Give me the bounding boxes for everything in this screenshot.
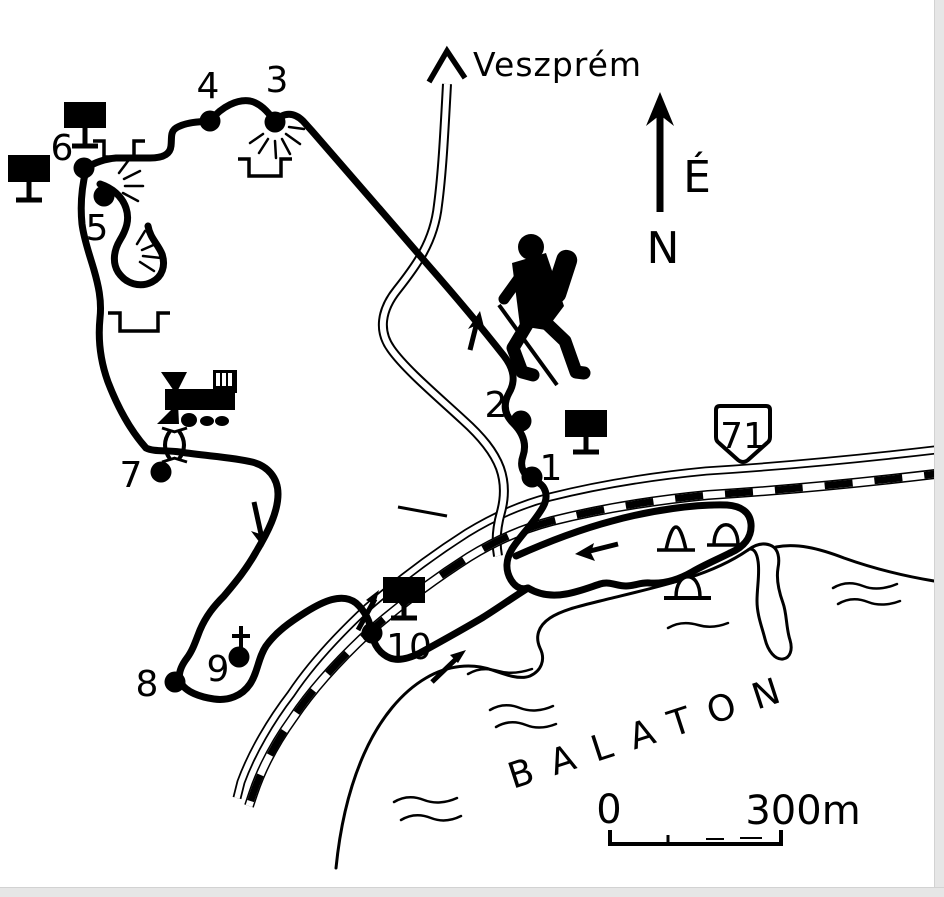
arch-monument-icon-2 [707,525,745,545]
waypoint-dot-2 [511,411,532,432]
waypoint-label-8: 8 [136,664,159,705]
waypoint-dots [74,111,543,693]
route-arrow-left [575,543,618,561]
lake-label: BALATON [503,665,803,797]
destination-label: Veszprém [473,45,642,84]
compass-label-n: N [647,223,680,274]
waypoint-label-9: 9 [207,649,230,690]
waypoint-dot-6 [74,158,95,179]
screenshot-edge-bottom [0,887,944,897]
road-veszprem [383,84,504,556]
ruin-icon-3 [108,313,170,331]
peninsula [748,544,791,659]
waypoint-label-7: 7 [120,455,143,496]
steam-train-icon [157,370,237,427]
ruin-icon-2 [238,159,292,176]
hiker-icon [499,234,584,385]
waypoint-label-10: 10 [386,627,432,668]
waypoint-dot-3 [265,112,286,133]
waypoint-label-6: 6 [51,128,74,169]
waypoint-dot-4 [200,111,221,132]
waypoint-label-1: 1 [540,448,563,489]
road-shield-number: 71 [720,416,766,457]
scale-zero-label: 0 [596,787,621,833]
water-waves [394,583,900,820]
compass-label-e: É [683,150,711,203]
side-road-stub [398,507,447,516]
scale-bar: 0 300m [596,787,860,844]
waypoint-label-5: 5 [86,208,109,249]
north-arrow-icon [646,92,674,212]
waypoint-label-2: 2 [485,385,508,426]
waypoint-dot-5 [94,186,115,207]
screenshot-edge-right [934,0,944,897]
destination-arrowhead [429,51,465,82]
waypoint-label-4: 4 [197,66,220,107]
road-shield-71: 71 [716,406,770,462]
info-board-icon-2 [8,155,50,200]
waypoint-dot-8 [165,672,186,693]
gate-icon [162,428,187,462]
arch-monument-icon-1 [657,527,695,550]
waypoint-dot-9 [229,647,250,668]
map-canvas: É N 71 [0,0,944,897]
info-board-icon-3 [565,410,607,452]
waypoint-label-3: 3 [266,60,289,101]
scale-end-label: 300m [745,788,860,834]
trail-map: É N 71 [0,0,944,897]
waypoint-dot-7 [151,462,172,483]
waypoint-dot-10 [362,623,383,644]
